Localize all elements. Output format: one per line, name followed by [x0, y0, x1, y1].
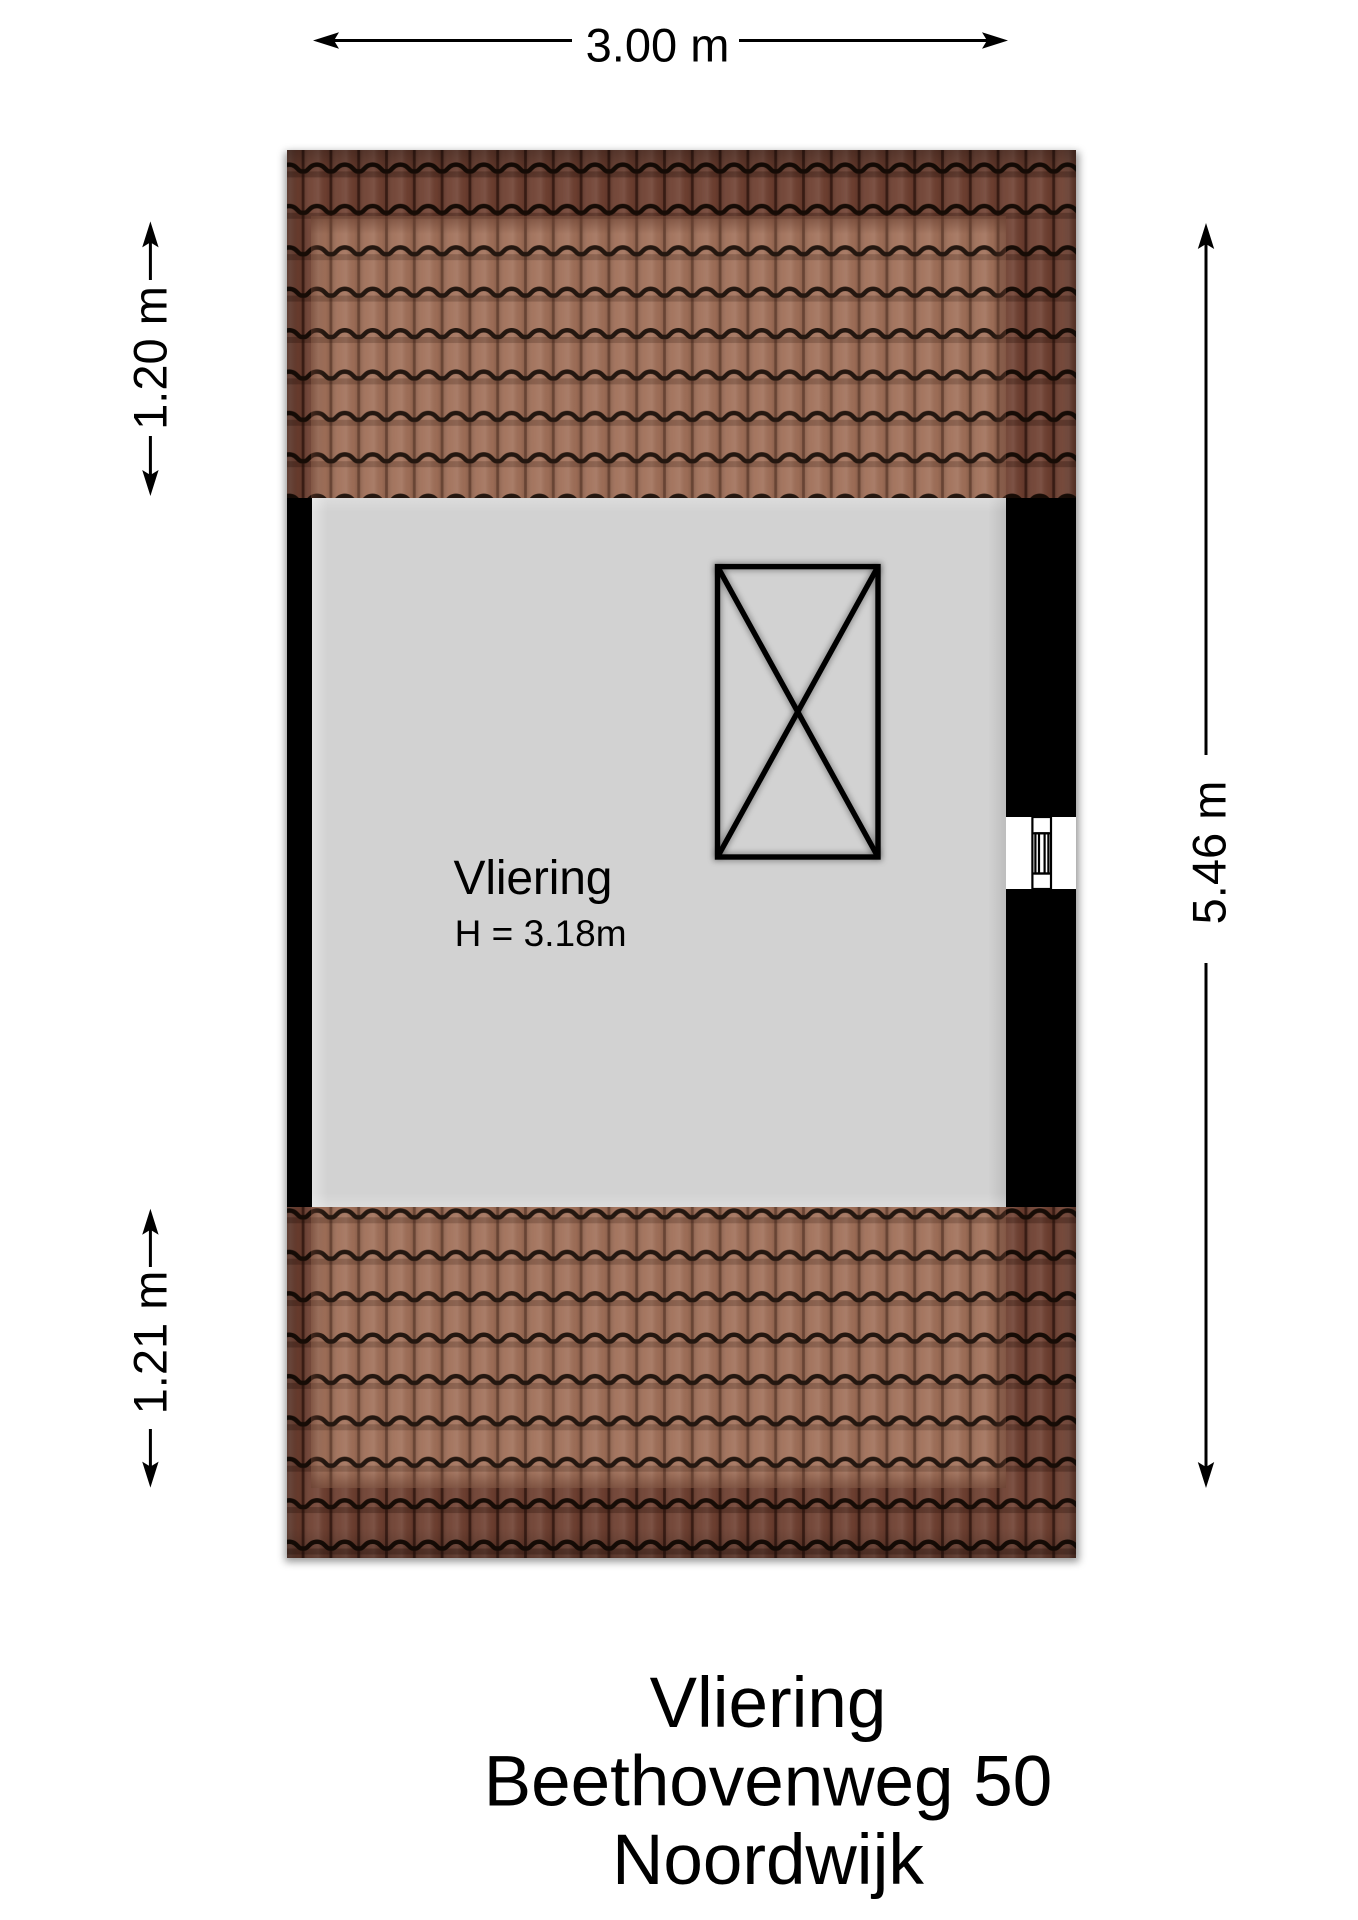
svg-text:3.00 m: 3.00 m	[586, 19, 730, 72]
svg-text:Vliering: Vliering	[454, 852, 613, 905]
svg-text:5.46 m: 5.46 m	[1183, 781, 1236, 925]
svg-text:1.21 m: 1.21 m	[124, 1271, 177, 1415]
svg-text:Vliering: Vliering	[650, 1664, 887, 1743]
svg-text:Beethovenweg 50: Beethovenweg 50	[484, 1743, 1052, 1822]
svg-text:1.20 m: 1.20 m	[124, 286, 177, 430]
svg-text:Noordwijk: Noordwijk	[612, 1821, 924, 1900]
svg-text:H = 3.18m: H = 3.18m	[455, 913, 627, 954]
